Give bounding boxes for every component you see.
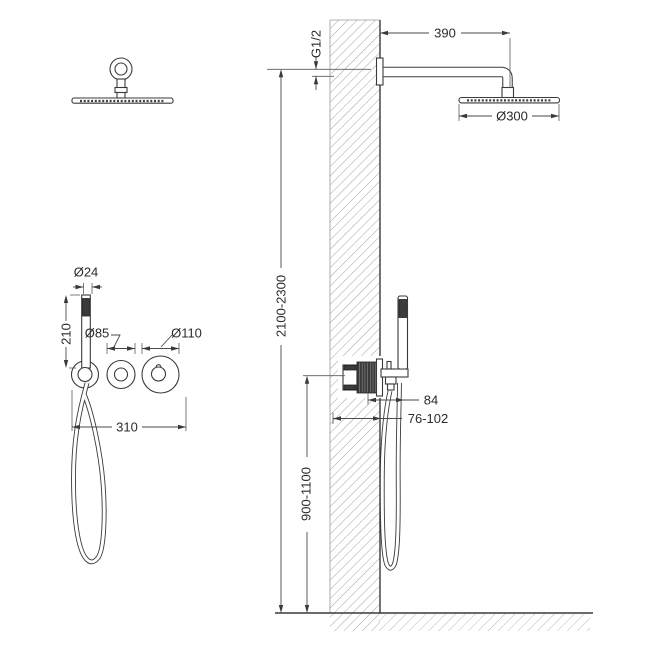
dim-installation-height-label: 2100-2300 <box>274 275 289 337</box>
dim-arm-length: 390 <box>380 26 510 89</box>
dim-rain-head-diameter: Ø300 <box>459 104 559 124</box>
hose-nut-upper <box>386 377 397 384</box>
holder-bracket <box>381 369 408 377</box>
valve-trim-front-view <box>107 356 179 393</box>
dim-valve-height-label: 900-1100 <box>299 467 314 521</box>
dim-trim-small-label: Ø85 <box>85 326 110 341</box>
dim-connection-thread-label: G1/2 <box>309 30 324 58</box>
trim-large-handle <box>152 367 166 381</box>
floor-hatch <box>378 613 590 631</box>
trim-small-escutcheon <box>107 361 135 389</box>
arm-collar-front <box>115 88 127 93</box>
rain-shower-side-view <box>377 58 560 103</box>
valve-back-flange-top <box>344 366 356 371</box>
dim-trim-diameters: Ø85 Ø110 <box>85 326 202 355</box>
head-connector-side <box>502 88 514 98</box>
concealed-valve-side-view <box>338 356 383 398</box>
valve-back-flange-bottom <box>344 385 356 390</box>
side-view: 390 G1/2 Ø300 2100-230 <box>267 20 593 631</box>
hand-shower-side-view <box>381 296 408 568</box>
front-view: Ø24 210 Ø85 Ø110 <box>59 58 202 562</box>
hand-shower-head-side <box>399 300 407 318</box>
holder-post <box>387 362 391 370</box>
dim-installation-depth-label: 76-102 <box>408 411 448 426</box>
dim-rain-head-diameter-label: Ø300 <box>496 109 528 124</box>
head-connector-front <box>117 93 125 99</box>
arm-escutcheon-front <box>110 58 132 80</box>
shower-technical-drawing: 390 G1/2 Ø300 2100-230 <box>0 0 650 650</box>
holder-clamp-front <box>78 368 92 382</box>
dim-trim-large-label: Ø110 <box>171 326 202 341</box>
shower-arm-body <box>383 72 508 89</box>
dim-installation-height: 2100-2300 <box>274 69 289 613</box>
dim-valve-protrusion-label: 84 <box>424 393 438 408</box>
dim-hand-shower-length-label: 210 <box>59 323 74 345</box>
dim-hand-shower-length: 210 <box>59 295 81 368</box>
rain-shower-front-view <box>72 58 173 103</box>
arm-wall-flange <box>377 58 384 85</box>
dim-hand-shower-diameter-label: Ø24 <box>74 265 99 280</box>
arm-tube-front <box>117 79 125 88</box>
dim-hand-shower-diameter: Ø24 <box>73 265 102 295</box>
dim-trim-width-label: 310 <box>116 420 138 435</box>
trim-small-leader <box>111 335 120 347</box>
valve-knurled-handle <box>357 362 377 393</box>
dim-arm-length-label: 390 <box>434 26 456 41</box>
hose-nut-lower <box>388 384 395 390</box>
shower-installation-diagram-page: 390 G1/2 Ø300 2100-230 <box>0 0 650 650</box>
hand-shower-head-front <box>83 299 90 317</box>
wall-hatch <box>330 20 380 631</box>
